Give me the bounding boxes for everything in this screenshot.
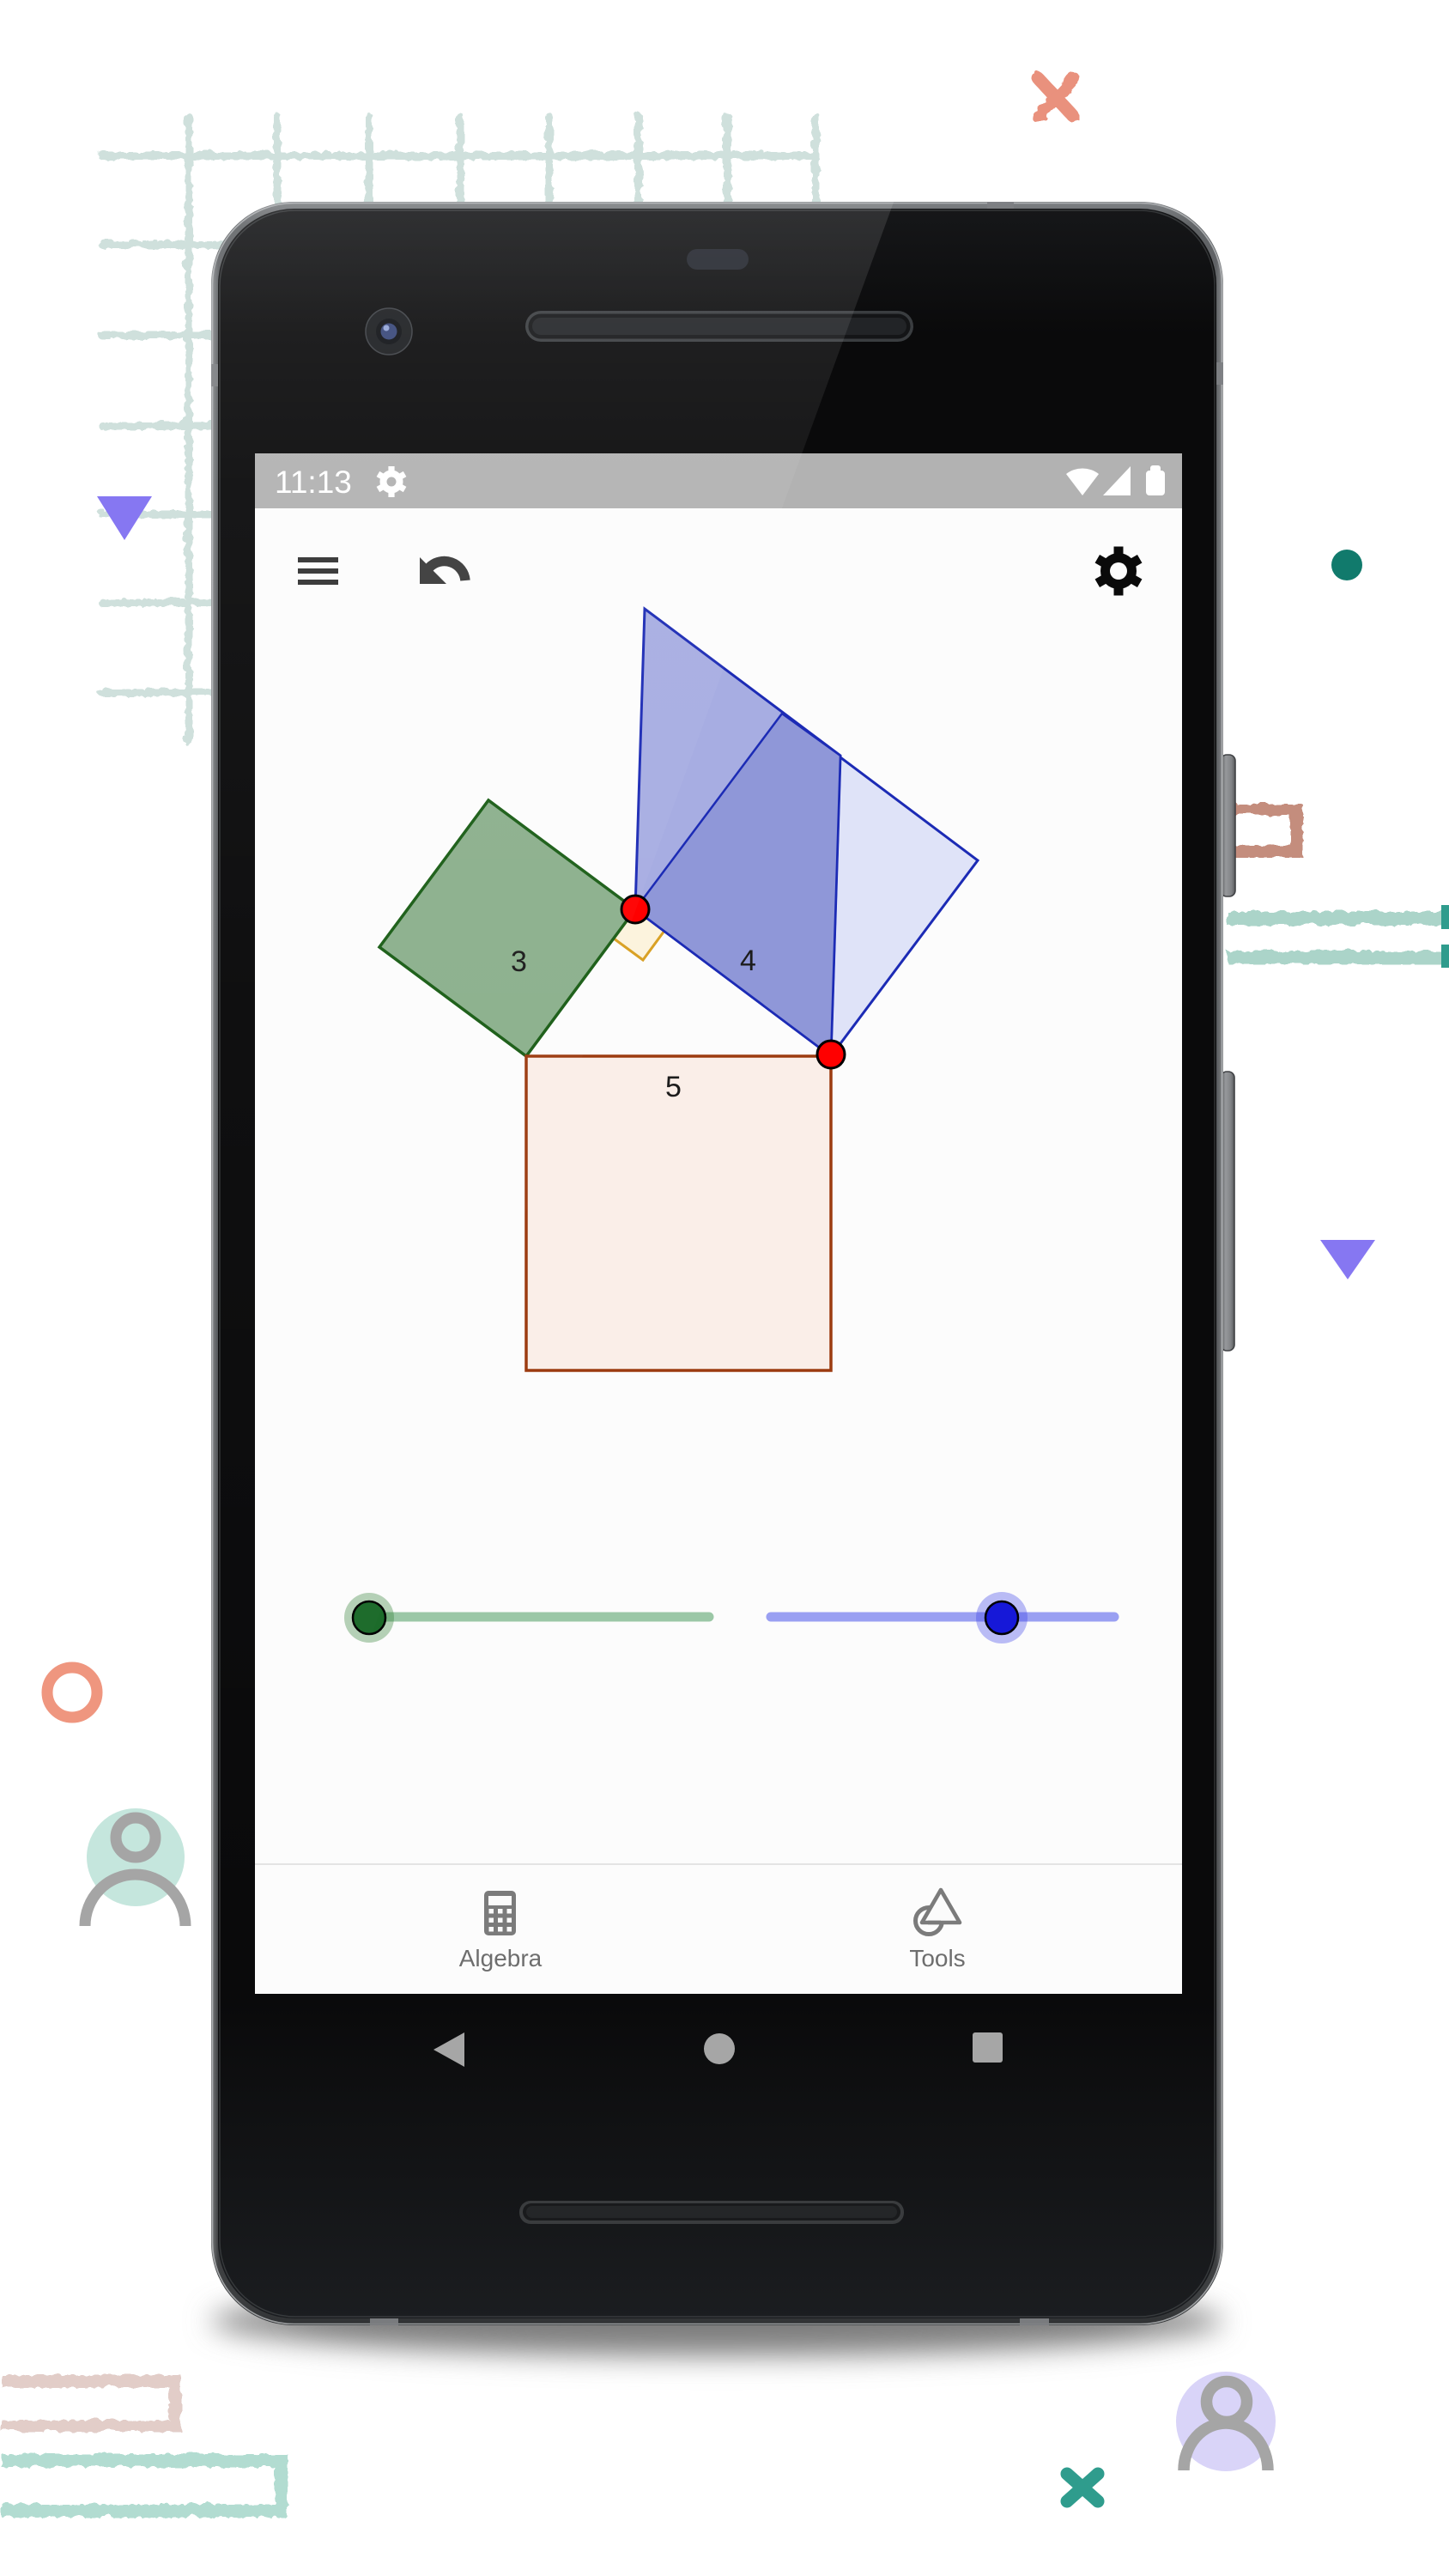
svg-text:Tools: Tools (909, 1945, 965, 1971)
svg-text:5: 5 (665, 1071, 682, 1103)
svg-text:Algebra: Algebra (459, 1945, 543, 1971)
svg-text:4: 4 (740, 945, 756, 977)
